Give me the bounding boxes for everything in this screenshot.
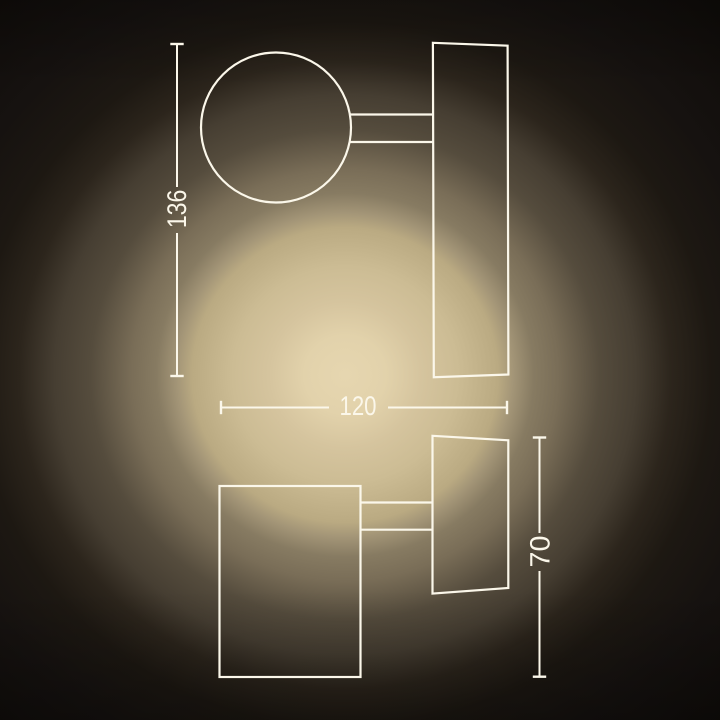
- svg-text:136: 136: [162, 190, 192, 229]
- svg-text:120: 120: [340, 391, 377, 421]
- svg-text:70: 70: [524, 536, 555, 568]
